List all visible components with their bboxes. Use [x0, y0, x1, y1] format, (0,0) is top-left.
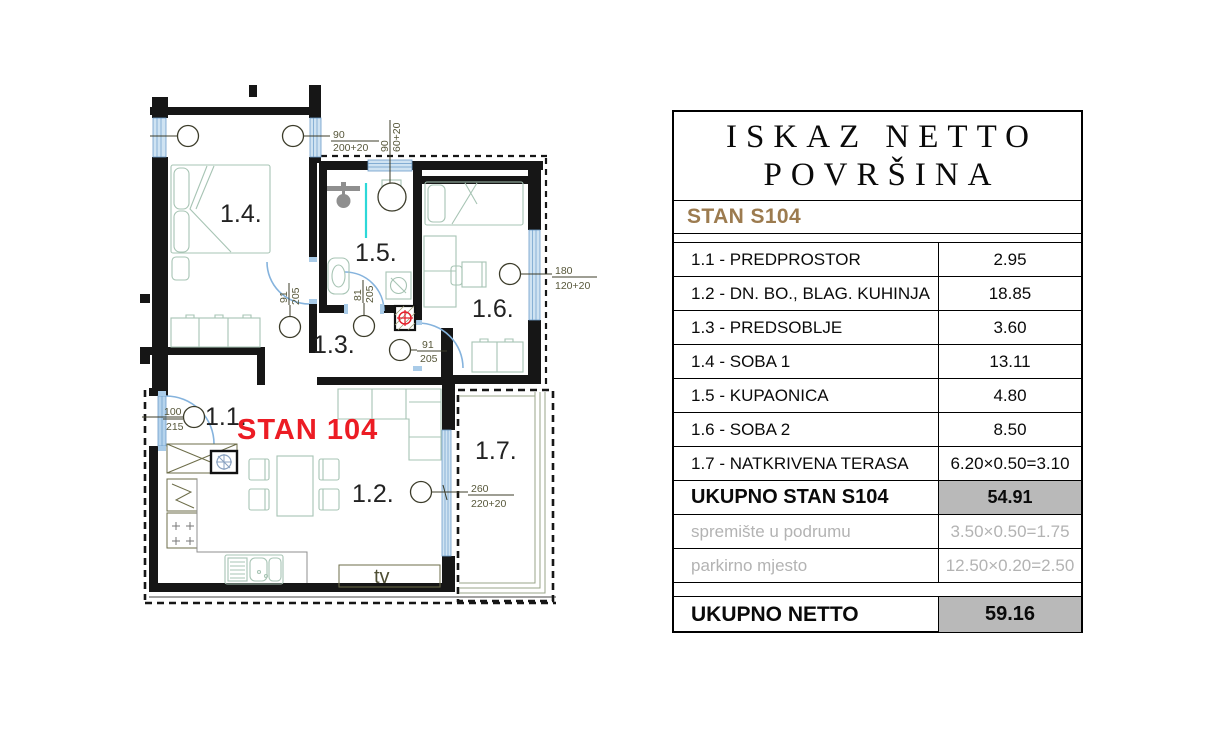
row-label: 1.1 - PREDPROSTOR	[674, 243, 938, 276]
table-row: 1.5 - KUPAONICA 4.80	[674, 378, 1081, 412]
marker-window-bath	[378, 183, 406, 211]
row-value: 13.11	[938, 345, 1081, 378]
room-label-1-2: 1.2.	[352, 480, 394, 508]
kitchen-sink	[225, 555, 283, 584]
row-label: UKUPNO STAN S104	[674, 481, 938, 514]
row-label: 1.3 - PREDSOBLJE	[674, 311, 938, 344]
window-room14-left	[153, 118, 166, 157]
svg-text:205: 205	[364, 285, 376, 303]
table-row: 1.3 - PREDSOBLJE 3.60	[674, 310, 1081, 344]
svg-text:205: 205	[420, 353, 438, 365]
marker-door-room14	[280, 317, 301, 338]
marker-window-top	[283, 126, 304, 147]
row-label: spremište u podrumu	[674, 515, 938, 548]
marker-window-room16	[500, 264, 521, 285]
row-value: 2.95	[938, 243, 1081, 276]
table-title: ISKAZ NETTO POVRŠINA	[674, 112, 1081, 200]
page: tv	[0, 0, 1229, 754]
row-label: 1.6 - SOBA 2	[674, 413, 938, 446]
svg-text:91: 91	[422, 339, 434, 351]
shower	[327, 182, 360, 208]
row-value: 6.20×0.50=3.10	[938, 447, 1081, 480]
fridge	[167, 479, 197, 511]
table-row: 1.4 - SOBA 1 13.11	[674, 344, 1081, 378]
terrace-door-window	[442, 430, 451, 556]
svg-text:90: 90	[333, 129, 345, 141]
row-value: 3.60	[938, 311, 1081, 344]
svg-text:100: 100	[164, 406, 182, 418]
marker-door-bath	[354, 316, 375, 337]
row-label: 1.4 - SOBA 1	[674, 345, 938, 378]
stove	[167, 513, 197, 548]
svg-text:120+20: 120+20	[555, 280, 590, 292]
table-title-line2: POVRŠINA	[763, 156, 1000, 194]
row-value: 3.50×0.50=1.75	[938, 515, 1081, 548]
table-spacer	[674, 582, 1081, 596]
marker-window-left	[178, 126, 199, 147]
row-value: 12.50×0.20=2.50	[938, 549, 1081, 582]
marker-door-entry	[184, 407, 205, 428]
kitchen-counter	[197, 479, 307, 583]
bed-room16	[425, 182, 523, 225]
svg-text:200+20: 200+20	[333, 142, 368, 154]
row-value: 54.91	[938, 481, 1081, 514]
table-row: spremište u podrumu 3.50×0.50=1.75	[674, 514, 1081, 548]
window-room14-top	[310, 118, 321, 157]
svg-text:180: 180	[555, 265, 573, 277]
room-label-1-7: 1.7.	[475, 437, 517, 465]
room-label-1-4: 1.4.	[220, 200, 262, 228]
bath-sink	[328, 258, 349, 294]
room-label-1-3: 1.3.	[313, 331, 355, 359]
room-label-1-5: 1.5.	[355, 239, 397, 267]
row-label: 1.2 - DN. BO., BLAG. KUHINJA	[674, 277, 938, 310]
row-label: UKUPNO NETTO	[674, 597, 938, 632]
table-row: 1.6 - SOBA 2 8.50	[674, 412, 1081, 446]
marker-terrace-door	[411, 482, 432, 503]
row-value: 8.50	[938, 413, 1081, 446]
row-label: 1.5 - KUPAONICA	[674, 379, 938, 412]
svg-text:215: 215	[166, 421, 184, 433]
table-row-total-netto: UKUPNO NETTO 59.16	[674, 596, 1081, 632]
row-value: 18.85	[938, 277, 1081, 310]
table-title-line1: ISKAZ NETTO	[726, 118, 1038, 156]
svg-text:60+20: 60+20	[391, 122, 403, 152]
svg-text:91: 91	[278, 291, 290, 303]
table-row: 1.1 - PREDPROSTOR 2.95	[674, 242, 1081, 276]
marker-door-room16	[390, 340, 411, 361]
svg-text:205: 205	[290, 287, 302, 305]
table-row: 1.7 - NATKRIVENA TERASA 6.20×0.50=3.10	[674, 446, 1081, 480]
nightstand	[172, 257, 189, 280]
washing-machine	[386, 272, 411, 299]
table-subtitle: STAN S104	[674, 200, 1081, 233]
table-row: 1.2 - DN. BO., BLAG. KUHINJA 18.85	[674, 276, 1081, 310]
window-room16	[529, 230, 540, 320]
apartment-label: STAN 104	[237, 414, 378, 446]
row-label: 1.7 - NATKRIVENA TERASA	[674, 447, 938, 480]
svg-text:81: 81	[352, 289, 364, 301]
entry-door-leaf	[158, 396, 166, 446]
svg-text:90: 90	[379, 140, 391, 152]
row-value: 4.80	[938, 379, 1081, 412]
room-label-1-6: 1.6.	[472, 295, 514, 323]
row-label: parkirno mjesto	[674, 549, 938, 582]
svg-text:220+20: 220+20	[471, 498, 506, 510]
net-area-table: ISKAZ NETTO POVRŠINA STAN S104 1.1 - PRE…	[672, 110, 1083, 633]
tv-label: tv	[374, 566, 390, 588]
svg-text:260: 260	[471, 483, 489, 495]
wardrobe-room14	[171, 315, 260, 347]
vent-unit	[211, 451, 237, 473]
dining-set	[249, 456, 339, 516]
dresser-room16	[472, 339, 523, 372]
table-spacer	[674, 233, 1081, 242]
row-value: 59.16	[938, 597, 1081, 632]
vertical-shaft	[395, 306, 415, 330]
table-row: parkirno mjesto 12.50×0.20=2.50	[674, 548, 1081, 582]
table-row-total-apartment: UKUPNO STAN S104 54.91	[674, 480, 1081, 514]
